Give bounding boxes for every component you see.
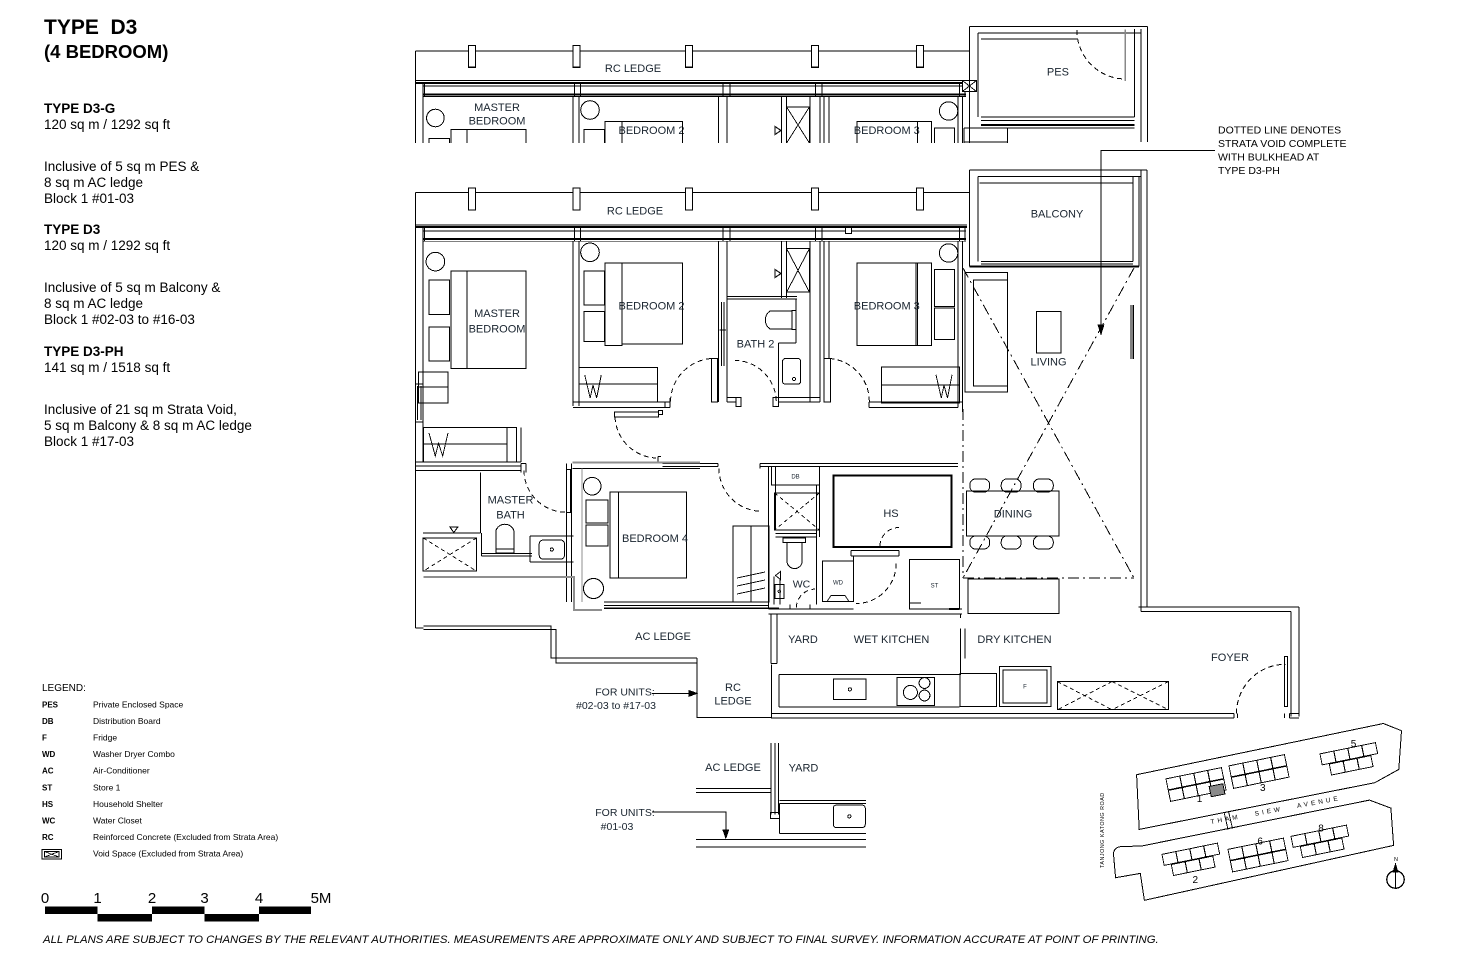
- svg-text:2: 2: [148, 890, 156, 907]
- svg-text:DINING: DINING: [994, 509, 1033, 521]
- svg-text:BEDROOM: BEDROOM: [469, 324, 526, 336]
- svg-text:LIVING: LIVING: [1030, 357, 1066, 369]
- svg-text:#02-03 to #17-03: #02-03 to #17-03: [576, 700, 656, 712]
- svg-text:3: 3: [200, 890, 208, 907]
- svg-text:WITH BULKHEAD AT: WITH BULKHEAD AT: [1218, 152, 1320, 164]
- svg-text:PES: PES: [1047, 67, 1069, 79]
- svg-text:120 sq m / 1292 sq ft: 120 sq m / 1292 sq ft: [44, 117, 170, 132]
- svg-text:WC: WC: [793, 579, 811, 591]
- svg-text:PES: PES: [42, 701, 59, 710]
- svg-text:HS: HS: [42, 800, 54, 809]
- svg-text:0: 0: [41, 890, 49, 907]
- svg-text:Fridge: Fridge: [93, 733, 117, 743]
- svg-text:8 sq m AC ledge: 8 sq m AC ledge: [44, 296, 143, 311]
- svg-text:Void Space (Excluded from Stra: Void Space (Excluded from Strata Area): [93, 848, 243, 858]
- svg-text:TYPE D3-PH: TYPE D3-PH: [1218, 165, 1280, 177]
- svg-text:5 sq m Balcony & 8 sq m AC led: 5 sq m Balcony & 8 sq m AC ledge: [44, 418, 252, 433]
- svg-text:MASTER: MASTER: [474, 308, 520, 320]
- svg-text:Private Enclosed Space: Private Enclosed Space: [93, 700, 184, 710]
- svg-text:Block 1 #01-03: Block 1 #01-03: [44, 191, 134, 206]
- svg-text:Water Closet: Water Closet: [93, 815, 142, 825]
- svg-text:THAM SIEW AVENUE: THAM SIEW AVENUE: [1210, 795, 1341, 826]
- svg-text:Reinforced Concrete (Excluded: Reinforced Concrete (Excluded from Strat…: [93, 832, 278, 842]
- svg-text:Distribution Board: Distribution Board: [93, 716, 161, 726]
- svg-text:6: 6: [1257, 837, 1263, 848]
- svg-text:141 sq m / 1518 sq ft: 141 sq m / 1518 sq ft: [44, 360, 170, 375]
- svg-text:BATH: BATH: [496, 510, 525, 522]
- svg-text:Block 1 #17-03: Block 1 #17-03: [44, 434, 134, 449]
- svg-text:Inclusive of 5 sq m Balcony &: Inclusive of 5 sq m Balcony &: [44, 280, 220, 295]
- svg-text:#01-03: #01-03: [601, 821, 634, 833]
- svg-text:DB: DB: [42, 717, 54, 726]
- svg-text:DOTTED LINE DENOTES: DOTTED LINE DENOTES: [1218, 125, 1341, 137]
- svg-text:MASTER: MASTER: [488, 495, 534, 507]
- svg-text:BATH 2: BATH 2: [737, 339, 775, 351]
- svg-text:ST: ST: [931, 584, 939, 590]
- svg-text:N: N: [1394, 857, 1398, 863]
- svg-text:5M: 5M: [311, 890, 332, 907]
- svg-text:HS: HS: [883, 508, 898, 520]
- svg-text:STRATA VOID COMPLETE: STRATA VOID COMPLETE: [1218, 138, 1347, 150]
- svg-text:F: F: [1023, 685, 1027, 691]
- svg-text:RC: RC: [725, 682, 741, 694]
- svg-text:WC: WC: [42, 816, 56, 825]
- svg-text:RC: RC: [42, 833, 54, 842]
- svg-text:Household Shelter: Household Shelter: [93, 799, 163, 809]
- svg-text:BEDROOM: BEDROOM: [469, 116, 526, 128]
- svg-text:WD: WD: [42, 750, 56, 759]
- svg-text:LEGEND:: LEGEND:: [42, 683, 86, 694]
- svg-text:ALL PLANS ARE SUBJECT TO CHANG: ALL PLANS ARE SUBJECT TO CHANGES BY THE …: [42, 934, 1159, 946]
- svg-text:FOR UNITS:: FOR UNITS:: [595, 687, 655, 699]
- svg-text:WD: WD: [833, 581, 844, 587]
- svg-text:(4 BEDROOM): (4 BEDROOM): [44, 41, 168, 62]
- svg-text:LEDGE: LEDGE: [714, 696, 751, 708]
- svg-text:BEDROOM 4: BEDROOM 4: [622, 533, 688, 545]
- svg-text:TYPE D3-G: TYPE D3-G: [44, 101, 115, 116]
- svg-text:TYPE D3: TYPE D3: [44, 16, 137, 39]
- svg-text:Block 1 #02-03 to #16-03: Block 1 #02-03 to #16-03: [44, 312, 195, 327]
- svg-text:Washer Dryer Combo: Washer Dryer Combo: [93, 749, 175, 759]
- svg-text:DRY KITCHEN: DRY KITCHEN: [977, 634, 1051, 646]
- svg-text:1: 1: [93, 890, 101, 907]
- svg-text:FOYER: FOYER: [1211, 652, 1249, 664]
- svg-text:TYPE D3-PH: TYPE D3-PH: [44, 344, 124, 359]
- svg-text:BEDROOM 2: BEDROOM 2: [618, 125, 684, 137]
- svg-text:1: 1: [1197, 794, 1203, 805]
- svg-text:YARD: YARD: [789, 763, 819, 775]
- svg-text:TYPE D3: TYPE D3: [44, 222, 101, 237]
- svg-text:WET KITCHEN: WET KITCHEN: [854, 634, 930, 646]
- svg-text:8 sq m AC ledge: 8 sq m AC ledge: [44, 175, 143, 190]
- svg-text:5: 5: [1351, 739, 1357, 750]
- svg-text:DB: DB: [791, 475, 799, 481]
- svg-text:Inclusive of 21 sq m Strata Vo: Inclusive of 21 sq m Strata Void,: [44, 402, 237, 417]
- svg-text:BALCONY: BALCONY: [1031, 209, 1084, 221]
- svg-text:AC LEDGE: AC LEDGE: [635, 631, 691, 643]
- svg-text:F: F: [42, 734, 47, 743]
- svg-text:4: 4: [255, 890, 263, 907]
- svg-text:Store 1: Store 1: [93, 782, 121, 792]
- svg-text:2: 2: [1193, 875, 1199, 886]
- svg-text:YARD: YARD: [788, 634, 818, 646]
- svg-text:BEDROOM 3: BEDROOM 3: [854, 301, 920, 313]
- svg-text:Inclusive of 5 sq m PES &: Inclusive of 5 sq m PES &: [44, 159, 199, 174]
- svg-text:TANJONG KATONG ROAD: TANJONG KATONG ROAD: [1100, 792, 1106, 868]
- svg-text:FOR UNITS:: FOR UNITS:: [595, 807, 655, 819]
- svg-text:RC LEDGE: RC LEDGE: [605, 63, 661, 75]
- svg-text:MASTER: MASTER: [474, 102, 520, 114]
- svg-text:120 sq m / 1292 sq ft: 120 sq m / 1292 sq ft: [44, 238, 170, 253]
- svg-text:RC LEDGE: RC LEDGE: [607, 206, 663, 218]
- svg-text:BEDROOM 2: BEDROOM 2: [618, 301, 684, 313]
- svg-text:ST: ST: [42, 783, 52, 792]
- svg-text:Air-Conditioner: Air-Conditioner: [93, 766, 150, 776]
- svg-text:3: 3: [1260, 783, 1266, 794]
- svg-text:AC: AC: [42, 767, 54, 776]
- svg-text:AC LEDGE: AC LEDGE: [705, 762, 761, 774]
- svg-text:8: 8: [1318, 824, 1324, 835]
- svg-text:BEDROOM 3: BEDROOM 3: [854, 125, 920, 137]
